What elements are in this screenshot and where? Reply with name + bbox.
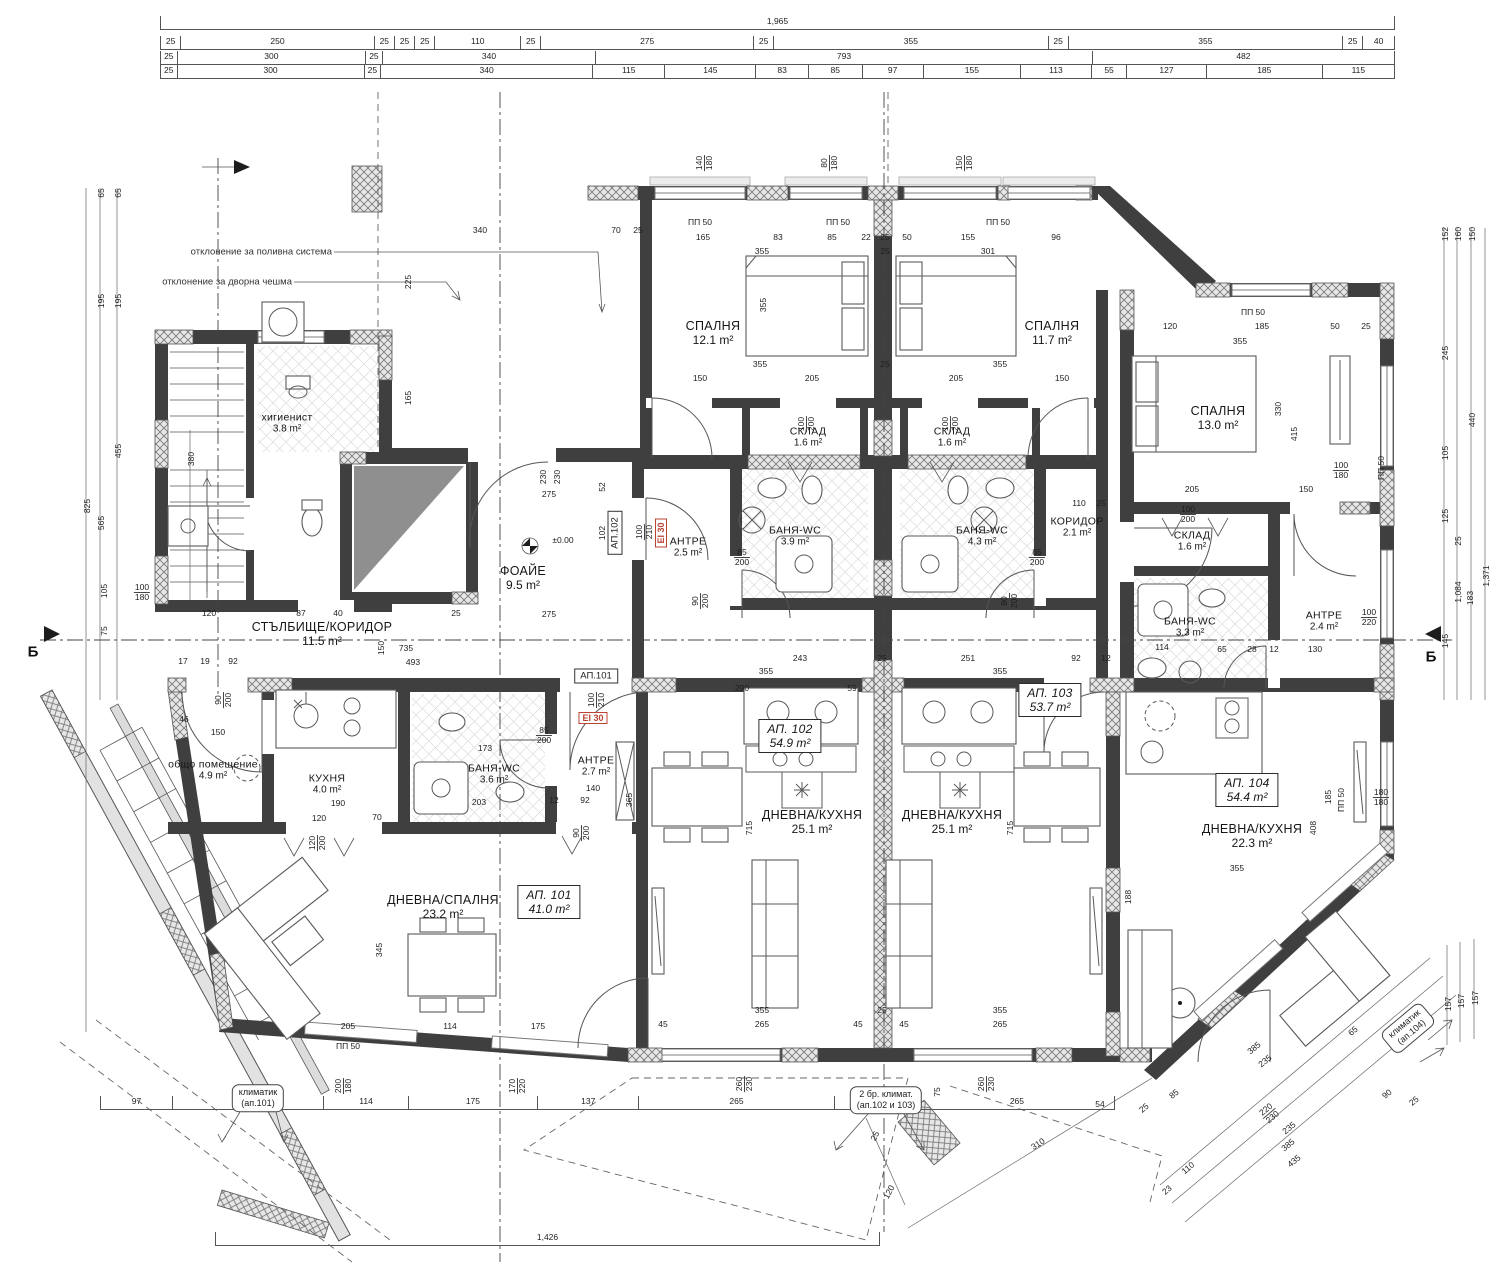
dim-label: 25 (880, 247, 889, 256)
staircase (170, 352, 244, 598)
dim-label: 105 (100, 584, 109, 598)
room-name: БАНЯ-WC (769, 525, 821, 537)
dim-label: 102 (598, 526, 607, 540)
dim-label: 45 (658, 1020, 667, 1029)
dim-label: 260230 (977, 1076, 995, 1092)
dim-label: 150180 (955, 155, 973, 171)
dim-label: ПП 50 (826, 218, 850, 227)
dim-row-3: 2530025340793482 (160, 51, 1395, 65)
ac-note-101-line1: климатик (239, 1087, 277, 1097)
dim-label: 355 (759, 298, 768, 312)
room-label-ap101: АП. 10141.0 m² (517, 885, 580, 919)
sofa-104 (1128, 930, 1172, 1048)
dim-label: 155 (961, 233, 975, 242)
dim-label: 150 (377, 641, 386, 655)
dim-value: 1,426 (215, 1232, 880, 1245)
dim-label: 355 (759, 667, 773, 676)
room-name: АП. 101 (526, 888, 571, 902)
dim-label: 90200 (1000, 593, 1018, 609)
room-area: 13.0 m² (1191, 418, 1246, 432)
dim-label: 45 (853, 1020, 862, 1029)
dim-label: 157 (1444, 997, 1453, 1011)
dim-label: 100180 (134, 583, 150, 601)
dim-label: 455 (114, 444, 123, 458)
dim-label: 735 (399, 644, 413, 653)
dim-label: 114 (1155, 643, 1169, 652)
room-name: КОРИДОР (1050, 516, 1103, 528)
dim-label: 150 (1468, 227, 1477, 241)
room-area: 4.0 m² (309, 785, 346, 796)
dim-label: 355 (755, 247, 769, 256)
dim-label: 125 (1441, 509, 1450, 523)
dim-label: 145 (1441, 634, 1450, 648)
dim-label: 175 (531, 1022, 545, 1031)
fire-rating-tag-1: EI 30 (655, 518, 667, 547)
dim-value: 115 (1322, 65, 1395, 78)
room-area: 4.3 m² (956, 537, 1008, 548)
dim-label: 90200 (214, 692, 232, 708)
dim-label: 92 (580, 796, 589, 805)
level-marker (522, 538, 538, 554)
dim-label: 203 (472, 798, 486, 807)
room-name: АП. 103 (1027, 686, 1072, 700)
dim-label: 330 (1274, 402, 1283, 416)
dim-value: 25 (414, 36, 434, 49)
room-area: 1.6 m² (790, 438, 827, 449)
room-label-dnevna-kuhnya-2: ДНЕВНА/КУХНЯ25.1 m² (902, 808, 1002, 836)
dim-label: 157 (1457, 994, 1466, 1008)
dim-label: 92 (1071, 654, 1080, 663)
dim-label: 90200 (691, 593, 709, 609)
section-letter-right: Б (1426, 649, 1437, 666)
dim-value: 355 (1068, 36, 1342, 49)
room-label-stalbishte: СТЪЛБИЩЕ/КОРИДОР11.5 m² (252, 620, 393, 648)
dim-label: 340 (473, 226, 487, 235)
dim-label: 170220 (508, 1078, 526, 1094)
room-label-obshto: общо помещение4.9 m² (168, 759, 258, 782)
dim-label: 243 (793, 654, 807, 663)
room-name: СТЪЛБИЩЕ/КОРИДОР (252, 620, 393, 634)
dim-label: 160 (1454, 227, 1463, 241)
room-name: АП. 102 (767, 722, 812, 736)
dim-label: 52 (598, 482, 607, 491)
dim-label: 355 (755, 1006, 769, 1015)
dim-label: 105 (1441, 446, 1450, 460)
dim-label: 25 (633, 226, 642, 235)
dim-label: 260230 (735, 1076, 753, 1092)
room-label-banya-2: БАНЯ-WC4.3 m² (956, 525, 1008, 548)
dim-label: 25 (451, 609, 460, 618)
room-name: хигиенист (261, 412, 312, 424)
room-label-dnevna-kuhnya-3: ДНЕВНА/КУХНЯ22.3 m² (1202, 822, 1302, 850)
dim-label: 355 (993, 360, 1007, 369)
dim-label: 45 (899, 1020, 908, 1029)
room-name: ФОАЙЕ (500, 564, 546, 578)
room-name: КУХНЯ (309, 773, 346, 785)
dim-label: 19 (200, 657, 209, 666)
section-letter-left: Б (28, 644, 39, 661)
dim-value: 175 (408, 1096, 537, 1109)
dim-label: 355 (1230, 864, 1244, 873)
dim-label: 85 (827, 233, 836, 242)
dim-label: 65 (1217, 645, 1226, 654)
dim-label: 25 (1454, 536, 1463, 545)
room-name: БАНЯ-WC (956, 525, 1008, 537)
dim-value: 25 (394, 36, 414, 49)
dim-value: 55 (1091, 65, 1126, 78)
ac-note-102-line1: 2 бр. климат. (859, 1089, 913, 1099)
dining-table-101 (408, 918, 496, 1012)
dim-value: 25 (753, 36, 773, 49)
room-label-dnevna-kuhnya-1: ДНЕВНА/КУХНЯ25.1 m² (762, 808, 862, 836)
dim-label: 150 (1055, 374, 1069, 383)
room-area: 25.1 m² (762, 822, 862, 836)
dim-label: 245 (1441, 346, 1450, 360)
dim-label: 408 (1309, 821, 1318, 835)
dim-label: 120 (312, 814, 326, 823)
room-name: СПАЛНЯ (686, 319, 741, 333)
dim-label: 165 (404, 391, 413, 405)
north-arrow (202, 160, 250, 174)
dim-label: 25 (877, 1006, 886, 1015)
dim-label: ПП 50 (336, 1042, 360, 1051)
room-label-ap103: АП. 10353.7 m² (1018, 683, 1081, 717)
room-name: АП. 104 (1224, 776, 1269, 790)
dim-label: 345 (375, 943, 384, 957)
dim-label: 25 (877, 654, 886, 663)
dim-label: 355 (1233, 337, 1247, 346)
dim-value: 265 (638, 1096, 833, 1109)
note-fountain: отклонение за дворна чешма (162, 277, 292, 288)
dim-value: 25 (520, 36, 540, 49)
dim-row-4: 253002534011514583859715511355127185115 (160, 65, 1395, 79)
dim-label: 28 (1247, 645, 1256, 654)
dim-row-bottom-total: 1,426 (215, 1232, 880, 1246)
ac-note-102-line2: (ап.102 и 103) (857, 1100, 915, 1110)
room-area: 9.5 m² (500, 578, 546, 592)
dim-label: 150 (693, 374, 707, 383)
dim-label: 100210 (587, 692, 605, 708)
dim-label: 1,084 (1454, 581, 1463, 602)
dim-label: 120 (1163, 322, 1177, 331)
dim-label: ПП 50 (1241, 308, 1265, 317)
room-area: 25.1 m² (902, 822, 1002, 836)
dim-value: 300 (177, 65, 364, 78)
dim-value: 25 (1342, 36, 1362, 49)
dim-value: 265 (919, 1096, 1115, 1109)
dim-label: 75 (933, 1087, 942, 1096)
room-area: 11.5 m² (252, 634, 393, 648)
dim-label: 80180 (820, 155, 838, 171)
dim-label: 46 (179, 715, 188, 724)
room-label-banya-1: БАНЯ-WC3.9 m² (769, 525, 821, 548)
dim-value: 114 (323, 1096, 408, 1109)
dim-label: 150 (211, 728, 225, 737)
dim-value: 145 (664, 65, 755, 78)
dim-value: 793 (595, 51, 1092, 64)
dim-label: 152 (1441, 227, 1450, 241)
dim-label: 120200 (308, 835, 326, 851)
room-label-koridor: КОРИДОР2.1 m² (1050, 516, 1103, 539)
dim-value: 185 (1206, 65, 1322, 78)
room-name: СПАЛНЯ (1025, 319, 1080, 333)
room-area: 3.8 m² (261, 424, 312, 435)
dim-label: 190 (331, 799, 345, 808)
dim-label: 715 (745, 821, 754, 835)
dim-label: 87 (296, 609, 305, 618)
room-name: АНТРЕ (578, 755, 615, 767)
dining-table-103 (1014, 752, 1100, 842)
room-label-spalnya-1: СПАЛНЯ12.1 m² (686, 319, 741, 347)
room-label-antre-1: АНТРЕ2.5 m² (670, 536, 707, 559)
dim-label: 355 (993, 1006, 1007, 1015)
room-label-higienist: хигиенист3.8 m² (261, 412, 312, 435)
room-area: 2.1 m² (1050, 528, 1103, 539)
dim-label: 85200 (1029, 548, 1045, 566)
room-area: 11.7 m² (1025, 333, 1080, 347)
room-name: общо помещение (168, 759, 258, 771)
room-area: 3.6 m² (468, 775, 520, 786)
room-area: 4.9 m² (168, 771, 258, 782)
room-label-antre-3: АНТРЕ2.4 m² (1306, 610, 1343, 633)
dim-value: 97 (862, 65, 923, 78)
dim-label: 205 (1185, 485, 1199, 494)
dim-value: 25 (364, 65, 381, 78)
dim-value: 97 (100, 1096, 172, 1109)
dim-value: 300 (177, 51, 365, 64)
dim-label: 40 (333, 609, 342, 618)
dim-label: 493 (406, 658, 420, 667)
dim-label: 265 (993, 1020, 1007, 1029)
dim-label: 100200 (1180, 505, 1196, 523)
dim-label: 365 (625, 793, 634, 807)
note-irrigation: отклонение за поливна система (191, 247, 332, 258)
ac-note-102-103: 2 бр. климат. (ап.102 и 103) (850, 1086, 922, 1114)
dim-label: 100200 (797, 416, 815, 432)
dim-value: 137 (537, 1096, 638, 1109)
room-name: СПАЛНЯ (1191, 404, 1246, 418)
dim-label: 157 (1471, 991, 1480, 1005)
dim-label: ПП 50 (688, 218, 712, 227)
room-name: БАНЯ-WC (468, 763, 520, 775)
fire-rating-tag-2: EI 30 (578, 712, 607, 724)
dim-label: 355 (753, 360, 767, 369)
dim-label: 110 (1072, 499, 1086, 508)
room-name: БАНЯ-WC (1164, 616, 1216, 628)
dim-value: 355 (773, 36, 1047, 49)
dim-label: 75 (100, 626, 109, 635)
dim-label: 120 (202, 609, 216, 618)
dim-label: 165 (696, 233, 710, 242)
dim-label: 180180 (1373, 788, 1389, 806)
dim-label: 85200 (536, 726, 552, 744)
dim-label: 12 (1269, 645, 1278, 654)
dim-label: 59 (847, 684, 856, 693)
room-name: АНТРЕ (670, 536, 707, 548)
dim-label: 92 (228, 657, 237, 666)
dim-value: 127 (1126, 65, 1206, 78)
dim-label: ПП 50 (1337, 788, 1346, 812)
room-label-spalnya-2: СПАЛНЯ11.7 m² (1025, 319, 1080, 347)
dim-label: 825 (83, 499, 92, 513)
dim-label: 200180 (334, 1078, 352, 1094)
dim-value: 113 (1020, 65, 1091, 78)
dim-label: 225 (404, 275, 413, 289)
dim-row-total: 1,965 (160, 16, 1395, 30)
dim-value: 25 (160, 51, 177, 64)
dim-label: 83 (773, 233, 782, 242)
dim-label: 251 (961, 654, 975, 663)
dim-label: 140180 (695, 155, 713, 171)
room-name: ДНЕВНА/КУХНЯ (762, 808, 862, 822)
room-label-kuhnya: КУХНЯ4.0 m² (309, 773, 346, 796)
room-area: 1.6 m² (934, 438, 971, 449)
dim-label: ПП 50 (1377, 456, 1386, 480)
dim-label: 188 (1124, 890, 1133, 904)
dim-label: 230 (553, 470, 562, 484)
dim-label: 90200 (572, 825, 590, 841)
dim-value: 25 (160, 65, 177, 78)
dim-label: 715 (1006, 821, 1015, 835)
dim-label: 25 (880, 233, 889, 242)
dim-label: 205 (949, 374, 963, 383)
dim-value: 25 (160, 36, 180, 49)
dim-label: 12 (549, 796, 558, 805)
dim-label: 140 (586, 784, 600, 793)
dim-label: 65 (114, 188, 123, 197)
dim-label: 100200 (941, 416, 959, 432)
sofa-101 (204, 857, 384, 1039)
dim-value: 110 (434, 36, 520, 49)
dim-value: 85 (808, 65, 862, 78)
dim-label: 265 (755, 1020, 769, 1029)
dim-label: 96 (1051, 233, 1060, 242)
dim-label: 183 (1466, 591, 1475, 605)
room-area: 54.4 m² (1224, 790, 1269, 804)
dim-label: 70 (611, 226, 620, 235)
dim-row-2: 252502525251102527525355253552540 (160, 36, 1395, 50)
dim-label: 54 (1095, 1100, 1104, 1109)
dim-label: 380 (187, 452, 196, 466)
room-name: АНТРЕ (1306, 610, 1343, 622)
dim-label: 205 (341, 1022, 355, 1031)
sofa-103 (886, 860, 932, 1008)
dining-table-102 (652, 752, 742, 842)
room-name: СКЛАД (1174, 530, 1211, 542)
dim-label: 173 (478, 744, 492, 753)
dim-value: 25 (374, 36, 394, 49)
door-tag-ap102: АП.102 (608, 511, 623, 555)
dim-value: 340 (380, 65, 592, 78)
dim-label: 25 (880, 360, 889, 369)
dim-value: 275 (540, 36, 753, 49)
room-name: ДНЕВНА/СПАЛНЯ (387, 893, 499, 907)
dim-label: ПП 50 (986, 218, 1010, 227)
room-area: 12.1 m² (686, 333, 741, 347)
room-area: 41.0 m² (526, 902, 571, 916)
ac-note-101: климатик (ап.101) (232, 1084, 284, 1112)
dim-value: 40 (1362, 36, 1395, 49)
dim-label: 85200 (734, 548, 750, 566)
dim-label: 100180 (1333, 461, 1349, 479)
dim-label: ±0.00 (552, 536, 573, 545)
dim-value: 340 (382, 51, 595, 64)
dim-label: 150 (1299, 485, 1313, 494)
dim-label: 195 (97, 294, 106, 308)
dim-value: 25 (1048, 36, 1068, 49)
room-area: 1.6 m² (1174, 542, 1211, 553)
room-name: ДНЕВНА/КУХНЯ (1202, 822, 1302, 836)
floor-plan-canvas: 1,965 252502525251102527525355253552540 … (0, 0, 1500, 1268)
room-label-foaie: ФОАЙЕ9.5 m² (500, 564, 546, 592)
dim-label: 185 (1324, 790, 1333, 804)
dim-label: 275 (542, 610, 556, 619)
dim-value: 25 (365, 51, 382, 64)
dim-value: 155 (923, 65, 1020, 78)
dim-label: 25 (1096, 499, 1105, 508)
bed-2 (896, 256, 1016, 356)
dim-label: 230 (539, 470, 548, 484)
dim-label: 195 (114, 294, 123, 308)
room-area: 53.7 m² (1027, 700, 1072, 714)
room-area: 22.3 m² (1202, 836, 1302, 850)
dim-label: 114 (443, 1022, 457, 1031)
room-name: ДНЕВНА/КУХНЯ (902, 808, 1002, 822)
dim-label: 100220 (1361, 608, 1377, 626)
dim-label: 12 (1101, 654, 1110, 663)
dim-label: 205 (805, 374, 819, 383)
sofa-102 (752, 860, 798, 1008)
dim-label: 440 (1468, 413, 1477, 427)
room-area: 2.4 m² (1306, 622, 1343, 633)
dim-label: 275 (542, 490, 556, 499)
dim-label: 130 (1308, 645, 1322, 654)
room-label-antre-2: АНТРЕ2.7 m² (578, 755, 615, 778)
dim-value: 115 (592, 65, 664, 78)
room-area: 2.5 m² (670, 548, 707, 559)
dim-label: 355 (993, 667, 1007, 676)
room-label-banya-3: БАНЯ-WC3.6 m² (468, 763, 520, 786)
dim-value: 1,965 (160, 16, 1395, 29)
dim-label: 25 (1361, 322, 1370, 331)
dim-label: 65 (97, 188, 106, 197)
room-label-spalnya-3: СПАЛНЯ13.0 m² (1191, 404, 1246, 432)
room-area: 23.2 m² (387, 907, 499, 921)
room-area: 2.7 m² (578, 767, 615, 778)
room-area: 54.9 m² (767, 736, 812, 750)
dim-label: 290 (735, 684, 749, 693)
dim-label: 50 (902, 233, 911, 242)
dim-label: 301 (981, 247, 995, 256)
dim-label: 17 (178, 657, 187, 666)
dim-label: 50 (1330, 322, 1339, 331)
room-label-ap102: АП. 10254.9 m² (758, 719, 821, 753)
dim-value: 250 (180, 36, 373, 49)
room-label-banya-4: БАНЯ-WC3.3 m² (1164, 616, 1216, 639)
dim-value: 83 (755, 65, 807, 78)
dim-label: 100210 (635, 524, 653, 540)
dim-value: 482 (1092, 51, 1395, 64)
room-area: 3.9 m² (769, 537, 821, 548)
room-label-ap104: АП. 10454.4 m² (1215, 773, 1278, 807)
door-tag-ap101: АП.101 (574, 669, 618, 684)
dim-label: 185 (1255, 322, 1269, 331)
dim-label: 415 (1290, 427, 1299, 441)
room-label-dnevna-spalnya: ДНЕВНА/СПАЛНЯ23.2 m² (387, 893, 499, 921)
wardrobe (1330, 356, 1350, 444)
sofa-104-corner (1252, 911, 1390, 1046)
dim-label: 1,371 (1482, 565, 1491, 586)
